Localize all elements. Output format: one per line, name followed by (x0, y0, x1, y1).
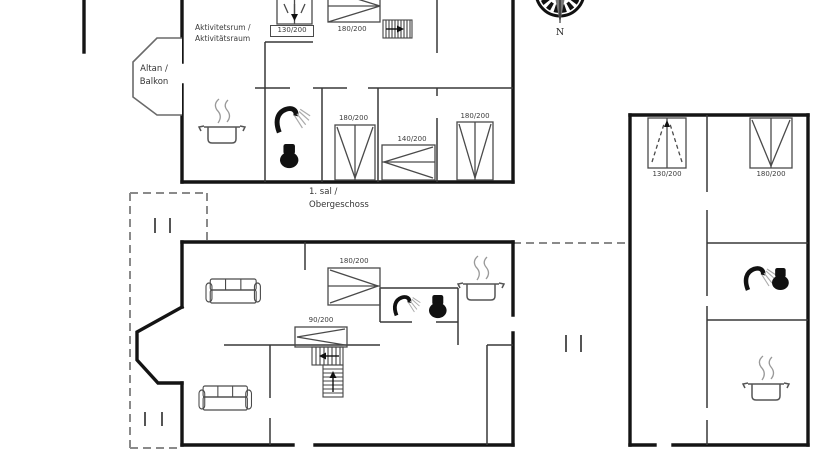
toilet-icon (280, 144, 298, 168)
bed-size-label: 180/200 (328, 25, 376, 33)
stairs-ground-floor (312, 347, 343, 397)
bed-size-label: 130/200 (645, 170, 689, 178)
bed-symbol-ground-90x200 (295, 327, 347, 347)
balcony-label: Altan / Balkon (131, 63, 177, 89)
compass-north-label: N (552, 27, 568, 38)
bed-symbol-upper-180x200-right (457, 122, 493, 180)
sofa-icon (206, 279, 260, 303)
stairs-upper-floor (383, 20, 412, 38)
bed-symbol-annex-130x200 (648, 118, 686, 168)
annex-interior-walls (707, 115, 808, 445)
bed-size-label: 140/200 (388, 135, 436, 143)
cooking-pot-icon (743, 356, 789, 400)
shower-icon (395, 297, 421, 315)
bed-symbol-upper-180x200-top (328, 0, 380, 22)
shower-icon (746, 268, 776, 290)
floor-plan: Aktivitetsrum / Aktivitätsraum Altan / B… (0, 0, 834, 460)
ground-floor-outer-walls (137, 242, 513, 445)
toilet-icon (429, 295, 447, 318)
bed-size-label: 130/200 (270, 25, 314, 37)
compass-rose-icon (536, 0, 584, 23)
sofa-icon (199, 386, 251, 410)
toilet-icon (772, 268, 789, 290)
ground-floor-interior-walls (224, 242, 513, 445)
bed-size-label: 180/200 (331, 114, 376, 122)
room-label-aktivitetsrum: Aktivitetsrum / Aktivitätsraum (195, 23, 250, 45)
bed-symbol-upper-130x200 (277, 0, 312, 24)
bed-symbol-ground-180x200 (328, 268, 380, 305)
shower-icon (277, 109, 310, 133)
floor-label-upper: 1. sal / Obergeschoss (309, 186, 369, 212)
bed-size-label: 180/200 (749, 170, 793, 178)
opening-tick-marks (145, 218, 581, 426)
bed-symbol-upper-140x200 (382, 145, 435, 180)
bed-size-label: 180/200 (328, 257, 380, 265)
cooking-pot-icon (458, 256, 504, 300)
bed-size-label: 90/200 (295, 316, 347, 324)
bed-symbol-upper-180x200-mid (335, 125, 375, 180)
cooking-pot-icon (199, 99, 245, 143)
floor-plan-drawing (0, 0, 834, 460)
bed-size-label: 180/200 (453, 112, 497, 120)
bed-symbol-annex-180x200 (750, 118, 792, 168)
